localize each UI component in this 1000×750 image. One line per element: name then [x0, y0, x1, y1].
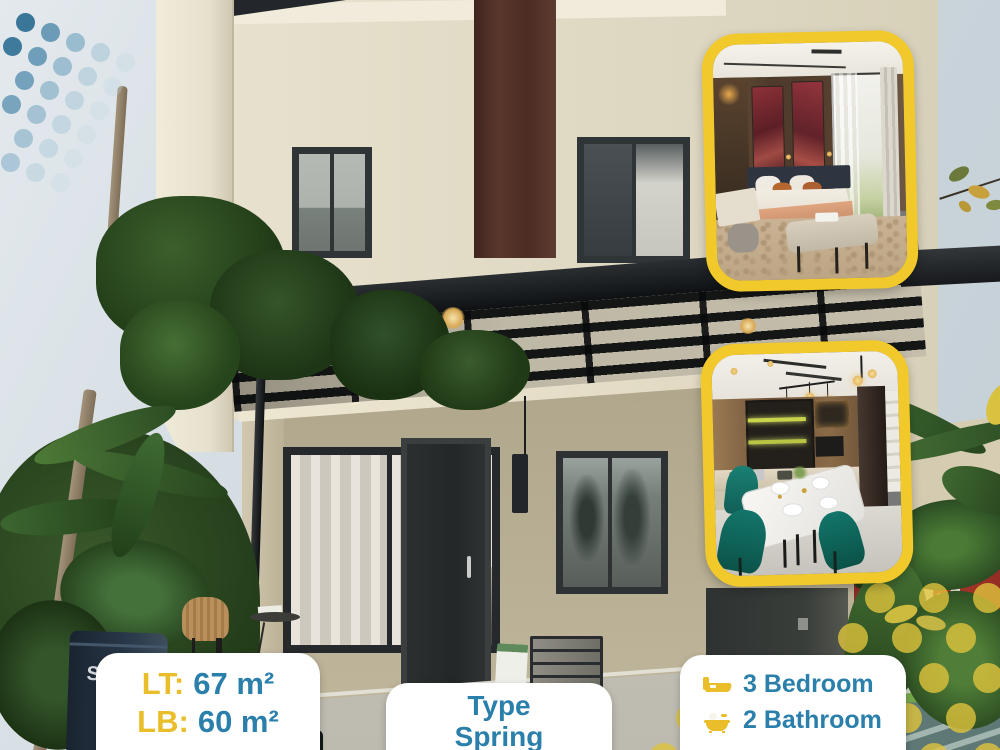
building-area-value: 60 m² — [198, 704, 279, 740]
bathroom-count: 2 Bathroom — [743, 706, 882, 735]
features-card: 3 Bedroom 2 Bathroom — [680, 655, 906, 750]
upper-right-window — [577, 137, 690, 263]
bathtub-icon — [702, 709, 732, 733]
side-garage-opening — [706, 588, 848, 658]
bedroom-photo — [701, 30, 919, 293]
front-door — [401, 438, 491, 712]
land-area-row: LT: 67 m² — [142, 666, 274, 702]
bedroom-row: 3 Bedroom — [702, 670, 906, 699]
land-building-area-card: LT: 67 m² LB: 60 m² — [96, 653, 320, 750]
bed-icon — [702, 673, 732, 697]
land-area-value: 67 m² — [193, 666, 274, 702]
canopy-light — [739, 318, 757, 334]
rattan-stool — [182, 597, 229, 641]
ground-floor-window-right — [556, 451, 668, 594]
building-area-label: LB: — [137, 704, 189, 740]
building-area-row: LB: 60 m² — [137, 704, 279, 740]
facade-wood-panel — [474, 0, 556, 258]
house-type-card: Type Spring — [386, 683, 612, 750]
upper-left-window — [292, 147, 372, 258]
type-name: Spring — [386, 721, 612, 750]
type-word: Type — [386, 690, 612, 721]
promo-flyer: SPRIN H — [0, 0, 1000, 750]
bedroom-count: 3 Bedroom — [743, 670, 874, 699]
bathroom-row: 2 Bathroom — [702, 706, 906, 735]
dining-room-photo — [700, 339, 914, 587]
wall-box — [512, 454, 528, 513]
land-area-label: LT: — [142, 666, 184, 702]
